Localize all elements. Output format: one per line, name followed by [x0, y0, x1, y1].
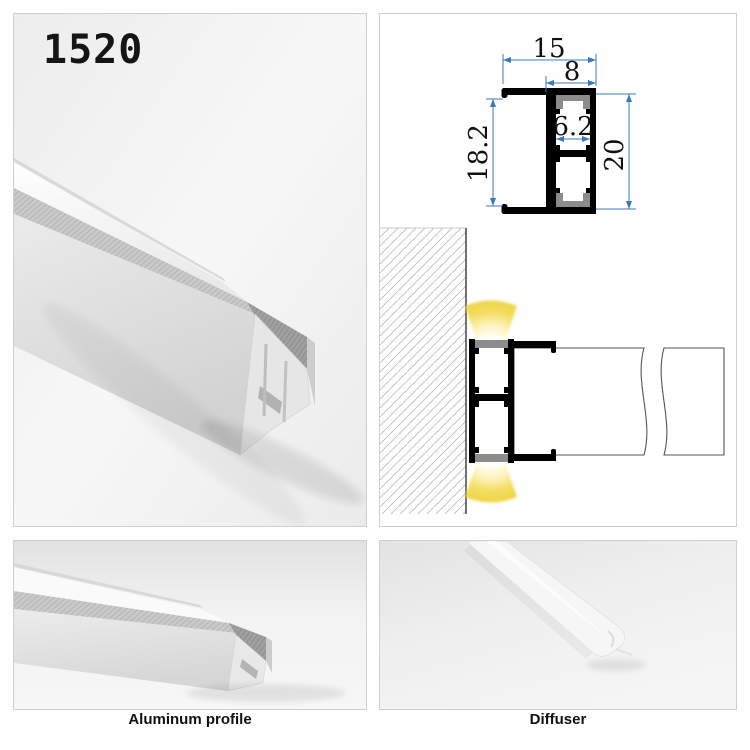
installation-diagram [380, 219, 736, 519]
dim-total-width: 15 [532, 34, 565, 64]
wall [380, 228, 466, 514]
caption-aluminum-profile: Aluminum profile [128, 711, 251, 728]
dim-total-height: 20 [600, 138, 630, 171]
aluminum-profile-thumbnail [14, 541, 366, 709]
diffuser-top [475, 340, 508, 348]
main-photo-panel: 1520 [13, 13, 367, 527]
dim-inner-width: 6.2 [552, 112, 593, 142]
installed-profile [469, 339, 556, 463]
product-sheet: 1520 [0, 0, 750, 750]
profile-thumbnail-panel [13, 540, 367, 710]
technical-drawing-panel: 15 8 6.2 18.2 20 [379, 13, 737, 527]
diffuser-thumbnail [380, 541, 736, 709]
caption-diffuser: Diffuser [530, 711, 587, 728]
aluminum-profile-photo [14, 14, 366, 526]
profile-cross-section [502, 88, 597, 214]
dim-inner-height: 18.2 [464, 124, 494, 182]
model-number: 1520 [43, 28, 143, 72]
drop-shadow [186, 684, 346, 702]
diffuser-thumbnail-panel [379, 540, 737, 710]
dim-channel-width: 8 [564, 57, 581, 87]
mounting-shelf [514, 348, 724, 455]
cross-section-drawing: 15 8 6.2 18.2 20 [380, 14, 736, 219]
diffuser-bottom [475, 454, 508, 462]
drop-shadow [586, 659, 646, 671]
